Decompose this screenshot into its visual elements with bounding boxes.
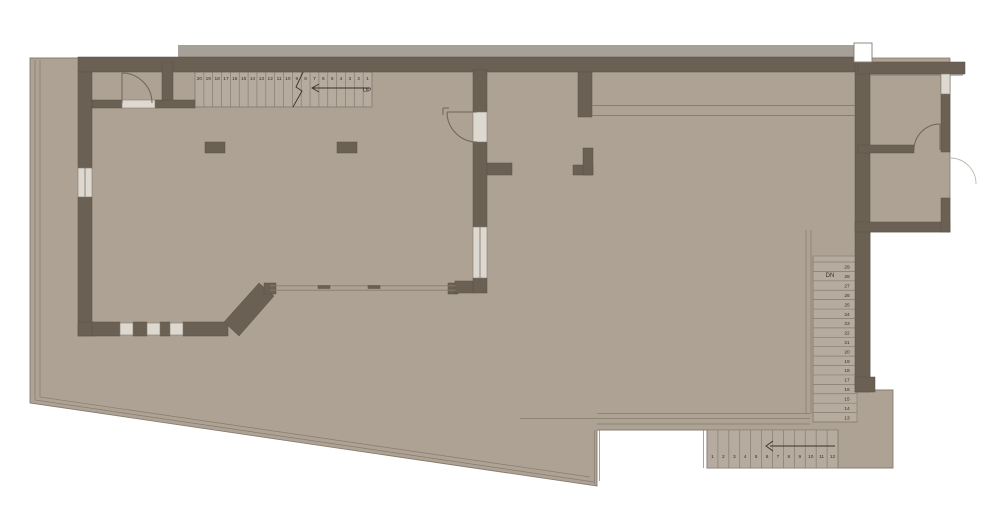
hall-wall [578,72,592,117]
stair-step-number: 10 [808,454,814,460]
closet-bottom-wall [155,100,195,108]
stair-step-number: 18 [214,76,220,82]
stair-step-number: 16 [232,76,238,82]
stair-step-number: 22 [844,331,850,337]
stairs-right: 2928272625242322212019181716151413 DN [813,256,857,422]
stair-step-number: 13 [844,415,850,421]
tr-room1-window [941,74,950,94]
stair-step-number: 9 [798,454,801,460]
stair-step-number: 19 [844,359,850,365]
stairs-top: 2019181716151413121110987654321 UP [195,68,372,107]
stair-step-number: 7 [313,76,316,82]
south-wall-seg [160,322,170,336]
stair-step-number: 8 [788,454,791,460]
tr-room2-door-swing [950,158,976,184]
stair-step-number: 11 [819,454,824,460]
stair-step-number: 25 [844,302,850,308]
stair-step-number: 2 [357,76,360,82]
right-wall-foot [855,377,875,392]
left-wall-lower [78,197,92,336]
stair-step-number: 21 [844,340,850,346]
stair-step-number: 29 [844,265,850,271]
stair-step-number: 6 [766,454,769,460]
stair-step-number: 9 [295,76,298,82]
stair-step-number: 20 [197,76,203,82]
stair-step-number: 16 [844,387,850,393]
stair-step-number: 26 [844,293,850,299]
stair-step-number: 7 [777,454,780,460]
left-wall-upper [78,72,92,168]
south-wall-window [120,323,133,335]
closet-bottom-wall [92,100,122,108]
stair-step-number: 28 [844,274,850,280]
stair-step-number: 4 [340,76,343,82]
tr-room2-bottom-wall [855,222,950,232]
stairs-bottom: 123456789101112 [707,430,838,468]
closet-right-wall [162,62,173,100]
middle-wall-corner [455,281,473,293]
south-wall-seg [133,322,147,336]
column-post [337,142,357,153]
stair-step-number: 15 [844,396,850,402]
south-wall-seg [92,322,120,336]
stair-step-number: 3 [733,454,736,460]
dn-label: DN [826,273,835,279]
stair-step-number: 4 [744,454,747,460]
l-bracket-wall-v [583,148,593,175]
middle-wall-mid [473,142,487,227]
window-band-post [264,283,276,294]
middle-door-opening [473,112,487,142]
stair-step-number: 8 [304,76,307,82]
stair-step-number: 20 [844,349,850,355]
stair-step-number: 1 [366,76,369,82]
stair-step-number: 11 [277,76,282,82]
tr-room2-right-wall [941,198,950,232]
stair-step-number: 6 [322,76,325,82]
middle-wall-upper [473,70,487,112]
south-wall-window [147,323,160,335]
stair-step-number: 17 [844,378,850,384]
stair-step-number: 14 [250,76,256,82]
middle-wall-lower [473,278,487,293]
stair-step-number: 24 [844,312,850,318]
floor-plan-canvas: 2019181716151413121110987654321 UP 29282… [0,0,1000,532]
stair-step-number: 17 [223,76,229,82]
stair-step-number: 27 [844,284,850,290]
window-band-mullion [318,286,330,289]
stair-step-number: 3 [349,76,352,82]
stair-step-number: 12 [268,76,274,82]
upper-roof-strip [178,45,858,58]
south-wall-seg [183,322,228,336]
stair-step-number: 5 [331,76,334,82]
main-deck-outline [30,58,893,486]
stair-step-number: 15 [241,76,247,82]
south-wall-window [170,323,183,335]
tr-room1-bottom-wall [858,145,914,153]
middle-wall-stub [487,163,512,175]
stair-step-number: 13 [259,76,265,82]
roof-column [854,43,872,62]
tr-top-wall [858,62,965,74]
top-wall [78,57,858,72]
floor-plan-svg: 2019181716151413121110987654321 UP 29282… [0,0,1000,532]
stair-step-number: 10 [285,76,291,82]
stairs-top-treads: 2019181716151413121110987654321 [195,72,372,107]
window-band-mullion [368,286,380,289]
stair-step-number: 12 [830,454,836,460]
stair-step-number: 19 [206,76,212,82]
up-label: UP [363,88,371,94]
stair-step-number: 1 [711,454,714,460]
stair-step-number: 14 [844,406,850,412]
closet-door-opening [122,100,155,108]
stair-step-number: 2 [722,454,725,460]
stair-step-number: 18 [844,368,850,374]
column-post [205,142,225,153]
stair-step-number: 23 [844,321,850,327]
stair-step-number: 5 [755,454,758,460]
